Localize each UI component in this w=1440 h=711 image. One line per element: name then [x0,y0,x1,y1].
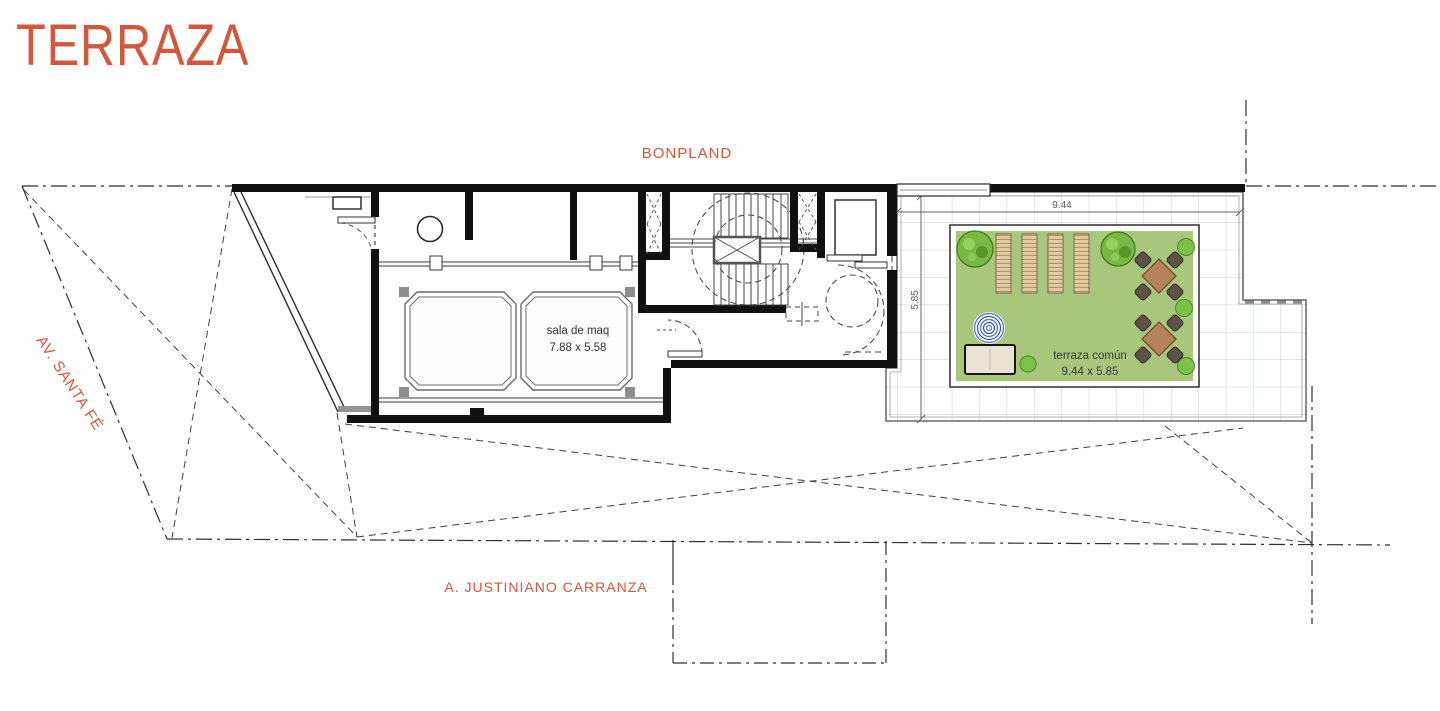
floor-plan-drawing: 9.44 5.85 [0,0,1440,711]
door-swings [826,256,892,355]
dining-table-icon [1134,314,1184,364]
elevator [827,200,887,268]
stair-core [638,192,825,326]
dim-width-label: 9.44 [1052,200,1072,211]
machine-room-label: sala de maq [547,325,610,337]
terrace-label: terraza común [1053,350,1127,362]
machine-room-size-label: 7.88 x 5.58 [550,342,607,354]
corridor-door [657,320,702,357]
lower-projection-rect [673,540,886,663]
street-label-left: AV. SANTA FÉ [33,333,107,434]
stair-landing [714,237,760,263]
slanted-wall [234,192,378,412]
interior-partitions [418,192,578,260]
dining-table-icon [1134,251,1184,301]
machine-room-wall [333,192,379,415]
parapet [897,184,990,196]
tree-icon [1101,232,1135,266]
terrace-size-label: 9.44 x 5.85 [1062,366,1119,378]
tree-icon [957,231,993,267]
floor-plan-page: TERRAZA [0,0,1440,711]
stair-passage [786,302,818,326]
vent-shaft [799,194,816,250]
street-label-bottom: A. JUSTINIANO CARRANZA [444,579,647,595]
vent-shaft [647,194,661,254]
street-label-top: BONPLAND [642,145,733,162]
tank-icon [418,217,443,242]
bench-icon [965,345,1015,374]
dim-height-label: 5.85 [910,290,921,310]
spa-spiral-icon [973,312,1005,344]
